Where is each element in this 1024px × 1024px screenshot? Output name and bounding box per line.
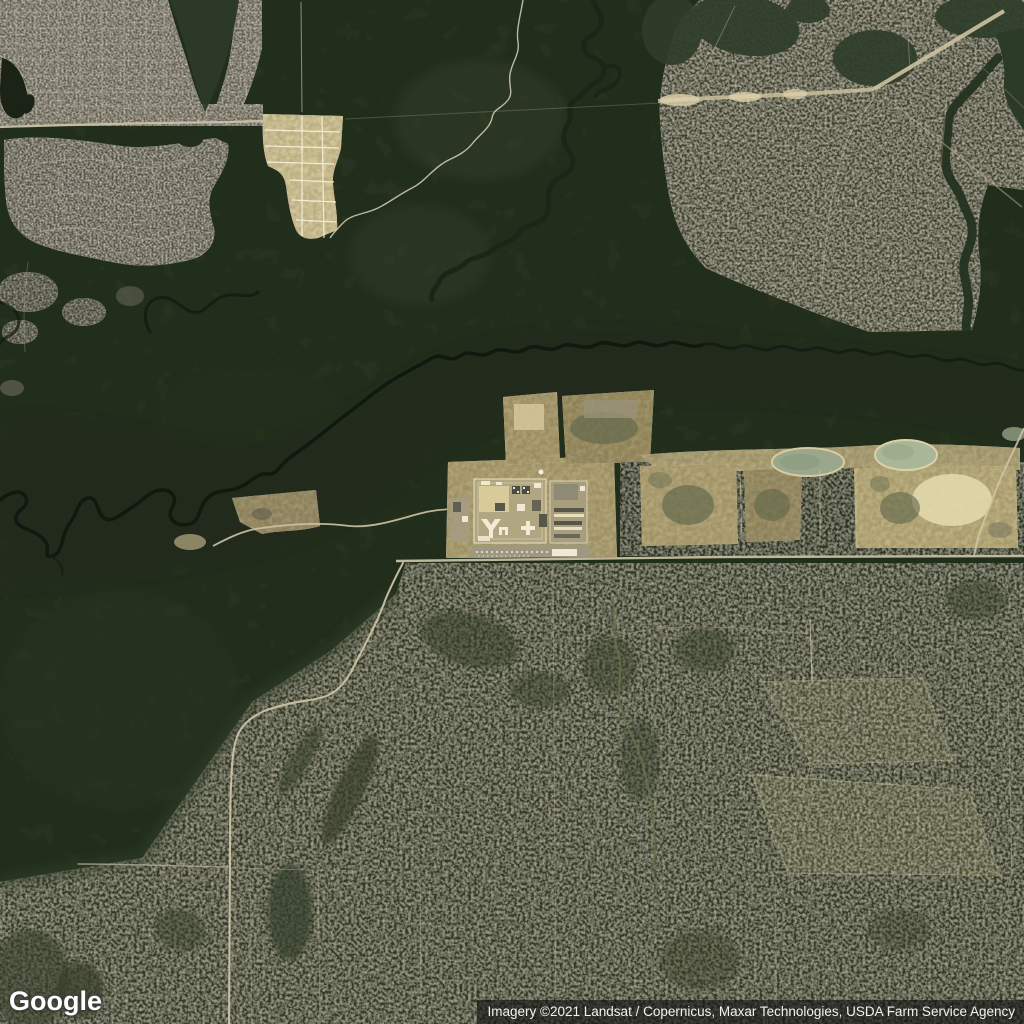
water-tank (539, 470, 544, 475)
satellite-imagery[interactable] (0, 0, 1024, 1024)
attribution-text: Imagery ©2021 Landsat / Copernicus, Maxa… (488, 1004, 1015, 1019)
east-annex (550, 481, 587, 543)
attribution-bar: Imagery ©2021 Landsat / Copernicus, Maxa… (477, 1000, 1024, 1024)
golf-pond (177, 131, 203, 147)
main-compound (474, 479, 547, 543)
map-viewport[interactable]: Google Imagery ©2021 Landsat / Copernicu… (0, 0, 1024, 1024)
south-parking-lot (472, 545, 590, 557)
google-logo[interactable]: Google (9, 986, 102, 1017)
